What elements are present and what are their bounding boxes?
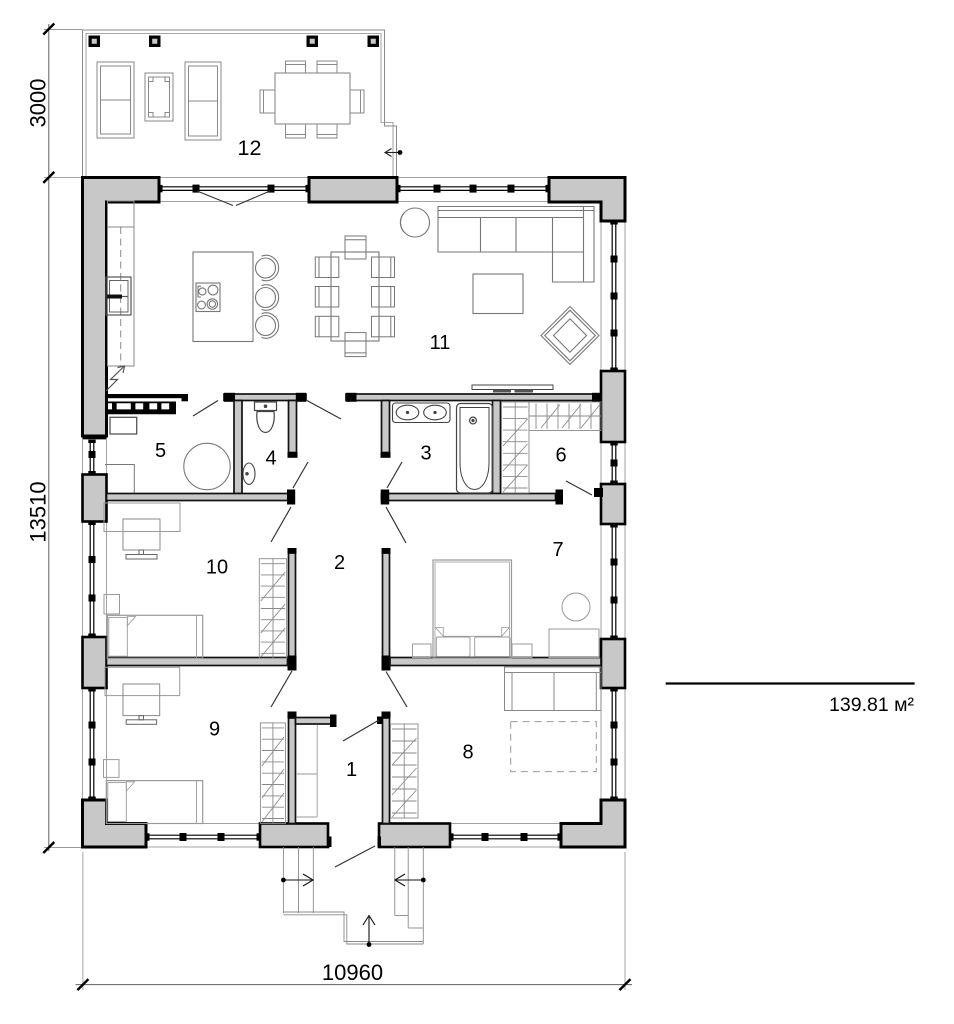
svg-text:7: 7	[552, 539, 563, 561]
svg-text:10: 10	[206, 557, 228, 579]
svg-text:1: 1	[346, 759, 357, 781]
svg-text:12: 12	[238, 136, 262, 160]
svg-text:139.81 м²: 139.81 м²	[829, 694, 914, 716]
svg-text:5: 5	[155, 440, 166, 462]
svg-text:2: 2	[334, 552, 345, 574]
svg-text:13510: 13510	[26, 481, 51, 542]
svg-text:6: 6	[555, 445, 566, 467]
svg-text:3: 3	[420, 443, 431, 465]
svg-text:10960: 10960	[322, 960, 383, 985]
svg-text:3000: 3000	[26, 79, 51, 128]
svg-text:9: 9	[209, 719, 220, 741]
svg-text:8: 8	[462, 742, 473, 764]
svg-text:11: 11	[430, 332, 451, 354]
svg-text:4: 4	[265, 448, 276, 470]
